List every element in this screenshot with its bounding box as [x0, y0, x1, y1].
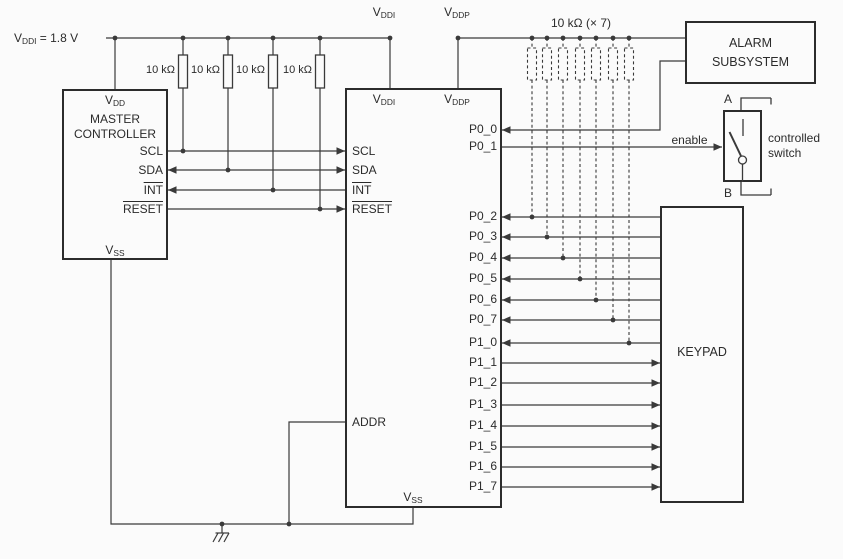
pin-p0-2: P0_2	[420, 209, 497, 223]
ground-symbol	[213, 533, 229, 542]
switch-caption-line2: switch	[768, 146, 820, 161]
switch-caption-line1: controlled	[768, 131, 820, 146]
pullup-bank-label: 10 kΩ (× 7)	[525, 16, 637, 30]
pullup-resistor-label-3: 10 kΩ	[218, 63, 265, 77]
pin-p0-4: P0_4	[420, 250, 497, 264]
expander-vddi-label: VDDI	[359, 92, 409, 109]
controlled-switch-box	[723, 110, 762, 182]
alarm-subsystem-box: ALARM SUBSYSTEM	[685, 21, 816, 84]
pullup-resistor-label-2: 10 kΩ	[173, 63, 220, 77]
pin-p1-1: P1_1	[420, 355, 497, 369]
vddi-rail-label: VDDI = 1.8 V	[14, 31, 78, 48]
master-title-line1: MASTER	[62, 112, 168, 126]
pullup-resistor-label-4: 10 kΩ	[264, 63, 312, 77]
pin-p0-5: P0_5	[420, 271, 497, 285]
pullup-resistor-label-1: 10 kΩ	[128, 63, 175, 77]
keypad-title: KEYPAD	[677, 344, 727, 361]
expander-pin-reset: RESET	[352, 202, 392, 216]
master-vdd-label: VDD	[65, 93, 165, 110]
pin-p1-6: P1_6	[420, 459, 497, 473]
pin-p1-3: P1_3	[420, 397, 497, 411]
keypad-box: KEYPAD	[660, 206, 744, 503]
pin-p1-5: P1_5	[420, 439, 497, 453]
master-vss-label: VSS	[65, 243, 165, 260]
pin-p0-1: P0_1	[420, 139, 497, 153]
expander-vddp-label: VDDP	[432, 92, 482, 109]
enable-label: enable	[662, 133, 717, 147]
switch-terminal-a-label: A	[719, 92, 737, 106]
expander-pin-sda: SDA	[352, 163, 377, 177]
alarm-title-line2: SUBSYSTEM	[712, 54, 789, 71]
i2c-bus-wires	[168, 151, 345, 209]
master-pin-int: INT	[90, 183, 163, 197]
expander-vss-label: VSS	[363, 490, 463, 507]
vddi-top-label: VDDI	[354, 5, 414, 22]
expander-pin-addr: ADDR	[352, 415, 386, 429]
pin-p0-0: P0_0	[420, 122, 497, 136]
vddp-top-label: VDDP	[427, 5, 487, 22]
pin-p1-4: P1_4	[420, 418, 497, 432]
expander-pin-scl: SCL	[352, 144, 375, 158]
master-pin-reset: RESET	[90, 202, 163, 216]
master-pin-scl: SCL	[90, 144, 163, 158]
circuit-diagram: ALARM SUBSYSTEM KEYPAD	[0, 0, 843, 559]
switch-terminal-b-label: B	[719, 186, 737, 200]
switch-caption: controlled switch	[768, 131, 820, 161]
pin-p0-6: P0_6	[420, 292, 497, 306]
pin-p1-0: P1_0	[420, 335, 497, 349]
alarm-title-line1: ALARM	[729, 35, 772, 52]
master-title-line2: CONTROLLER	[62, 127, 168, 141]
pullup-resistor-bank-dashed	[528, 38, 634, 343]
pin-p0-3: P0_3	[420, 229, 497, 243]
master-pin-sda: SDA	[90, 163, 163, 177]
expander-pin-int: INT	[352, 183, 371, 197]
pin-p0-7: P0_7	[420, 312, 497, 326]
pin-p1-2: P1_2	[420, 375, 497, 389]
